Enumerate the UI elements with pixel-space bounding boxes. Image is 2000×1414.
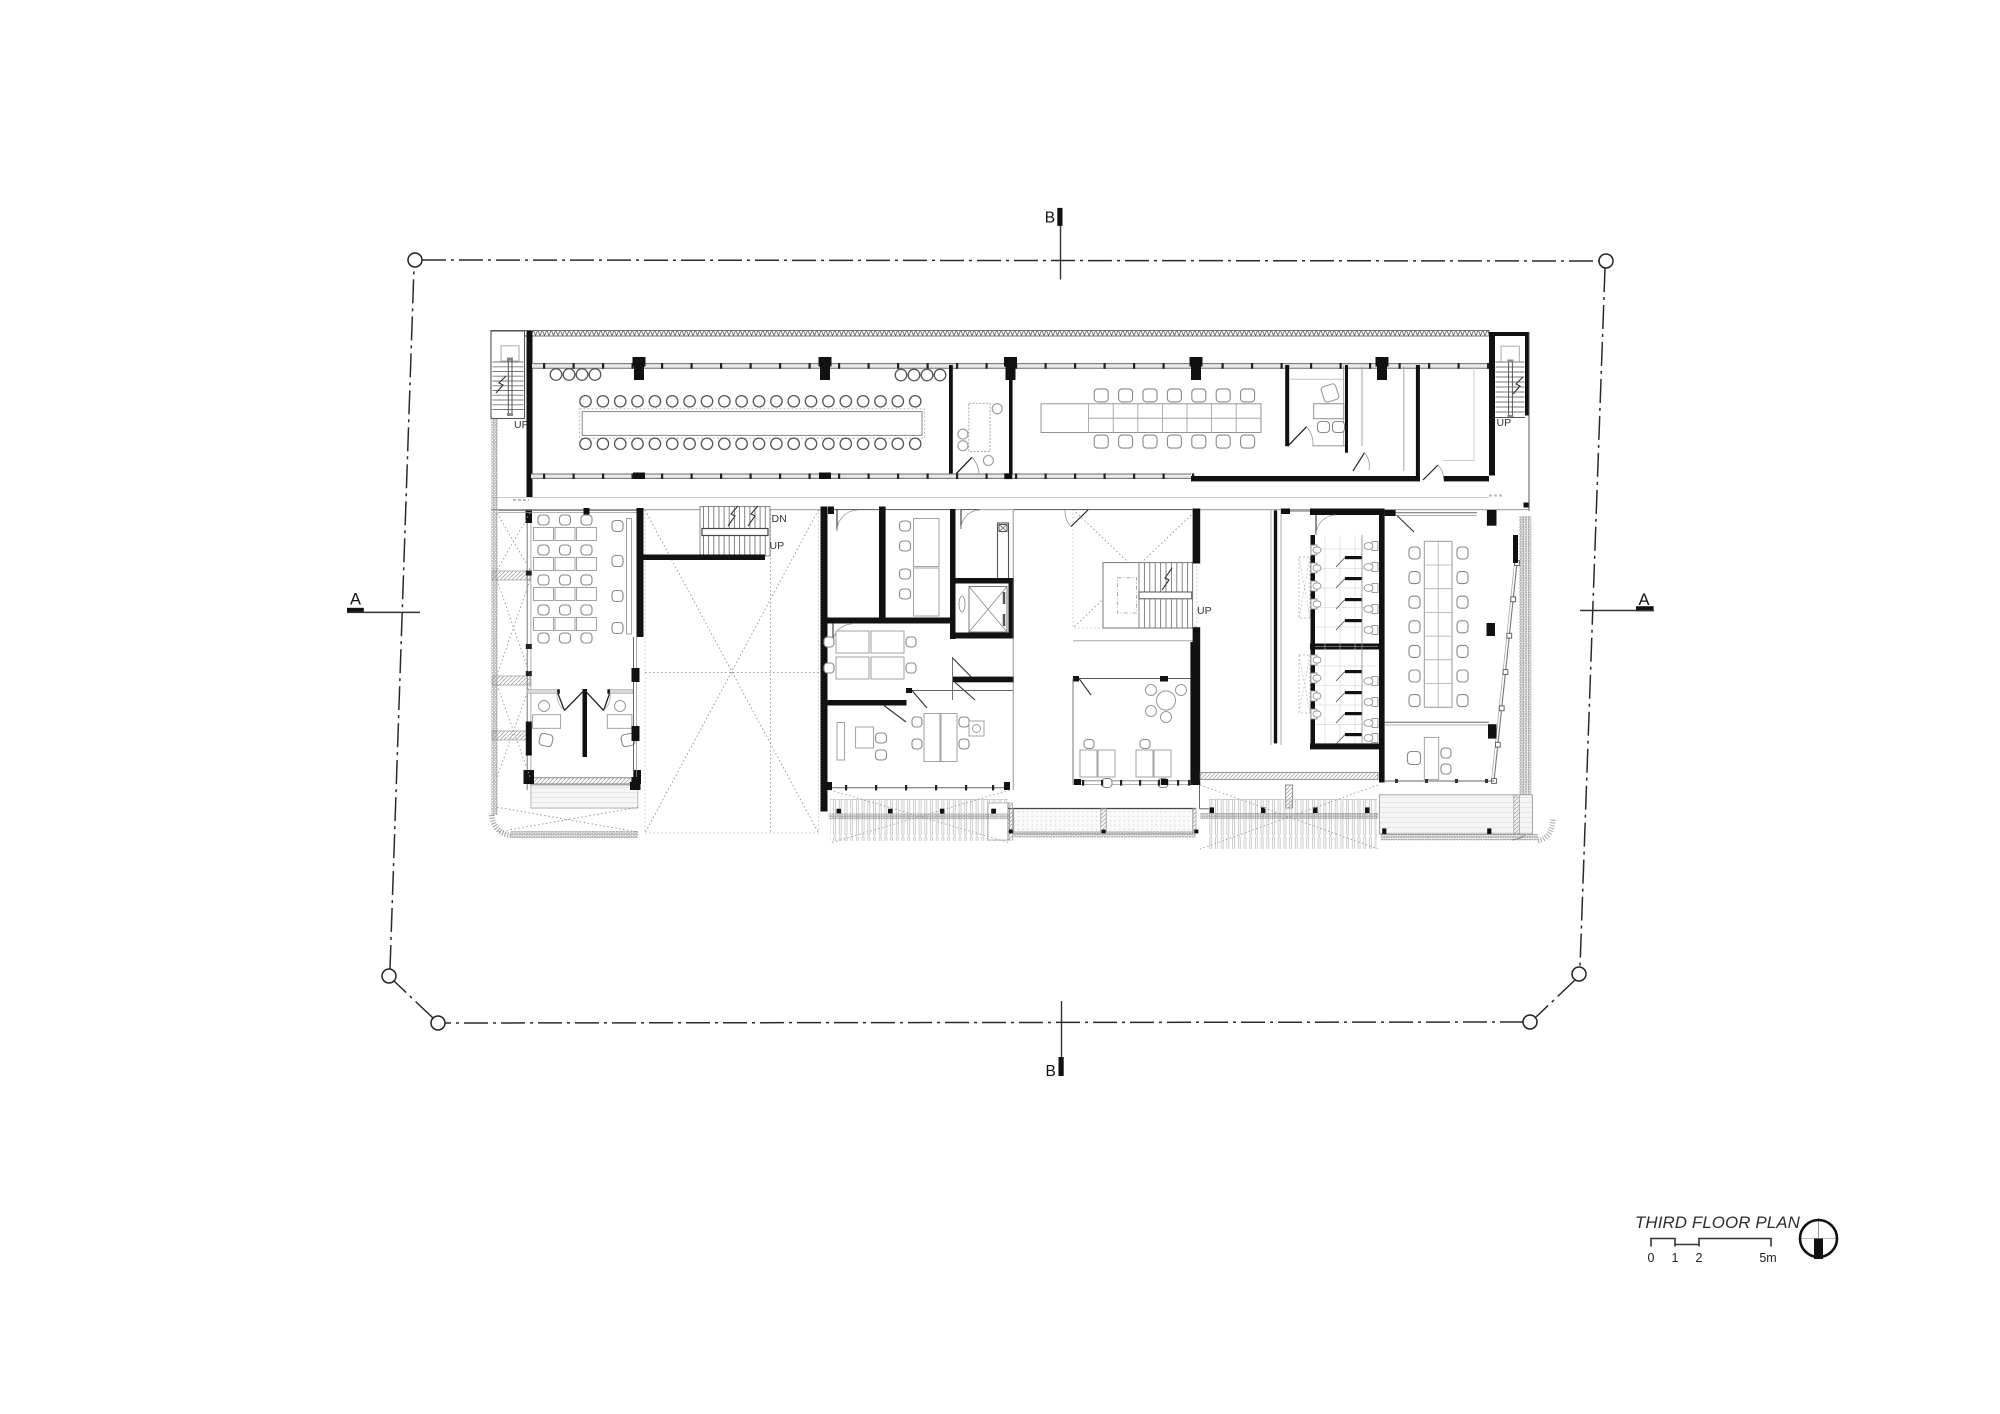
svg-text:UP: UP <box>770 540 785 552</box>
svg-text:THIRD FLOOR PLAN: THIRD FLOOR PLAN <box>1635 1213 1801 1232</box>
svg-text:2: 2 <box>1696 1251 1703 1265</box>
svg-text:UP: UP <box>1497 417 1512 429</box>
svg-text:B: B <box>1045 210 1055 227</box>
svg-text:5m: 5m <box>1759 1251 1776 1265</box>
svg-text:A: A <box>350 591 361 609</box>
svg-text:UP: UP <box>1197 605 1212 617</box>
svg-text:1: 1 <box>1672 1251 1679 1265</box>
svg-text:B: B <box>1046 1063 1056 1080</box>
svg-text:UP: UP <box>514 419 529 431</box>
svg-text:0: 0 <box>1648 1251 1655 1265</box>
svg-text:A: A <box>1639 591 1650 609</box>
svg-text:DN: DN <box>772 513 787 525</box>
